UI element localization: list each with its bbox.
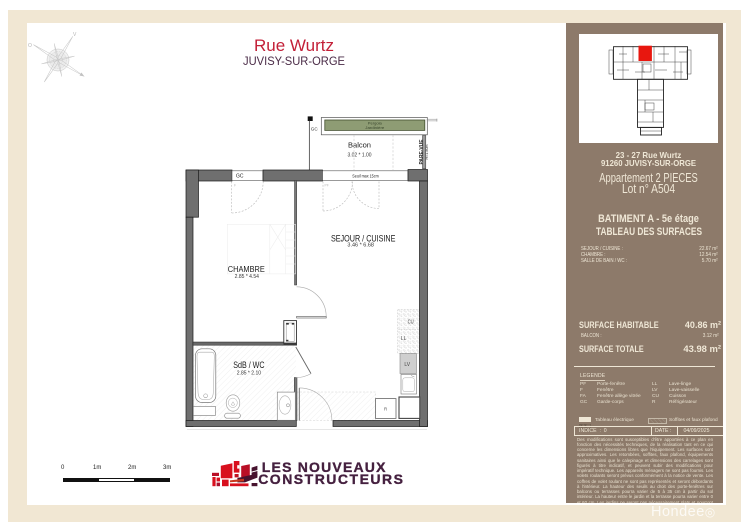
svg-text:3.02 * 1.00: 3.02 * 1.00 (348, 152, 372, 158)
svg-text:SdB / WC: SdB / WC (233, 360, 265, 370)
svg-text:2.85 * 4.54: 2.85 * 4.54 (235, 274, 260, 280)
svg-text:PF: PF (325, 184, 329, 188)
svg-text:LL: LL (401, 336, 406, 342)
svg-text:V: V (73, 32, 77, 38)
svg-text:CU: CU (408, 320, 414, 326)
svg-text:GC: GC (311, 126, 319, 131)
svg-text:H=1.80m: H=1.80m (425, 144, 429, 159)
svg-text:CHAMBRE: CHAMBRE (228, 264, 265, 274)
svg-text:Balcon: Balcon (348, 141, 371, 150)
svg-text:O: O (28, 43, 32, 49)
svg-text:F: F (234, 184, 236, 188)
svg-text:GC: GC (236, 174, 244, 180)
svg-text:Jardinière: Jardinière (365, 125, 385, 130)
svg-text:Seuil max 15cm: Seuil max 15cm (352, 173, 379, 178)
svg-text:2.85 * 2.10: 2.85 * 2.10 (237, 371, 262, 377)
svg-text:R: R (384, 406, 387, 411)
svg-text:LV: LV (404, 362, 410, 368)
svg-text:3.46 * 6.68: 3.46 * 6.68 (347, 242, 374, 248)
